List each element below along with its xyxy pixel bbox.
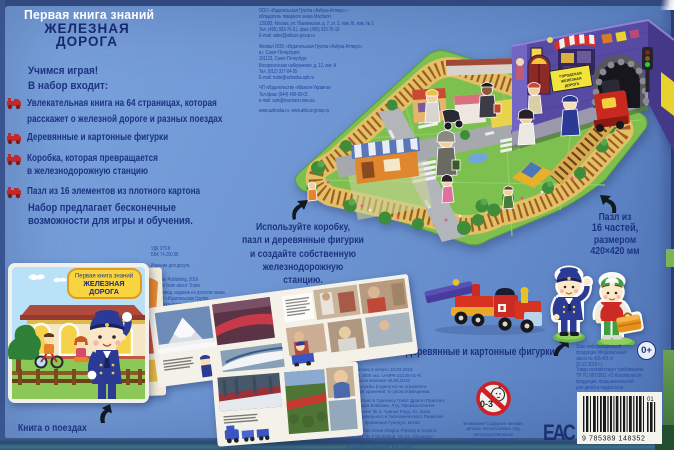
- svg-text:01: 01: [647, 397, 654, 403]
- svg-text:0-3: 0-3: [480, 399, 493, 409]
- svg-text:ДОРОГА: ДОРОГА: [89, 287, 119, 296]
- svg-text:9 785389 148352: 9 785389 148352: [582, 436, 646, 443]
